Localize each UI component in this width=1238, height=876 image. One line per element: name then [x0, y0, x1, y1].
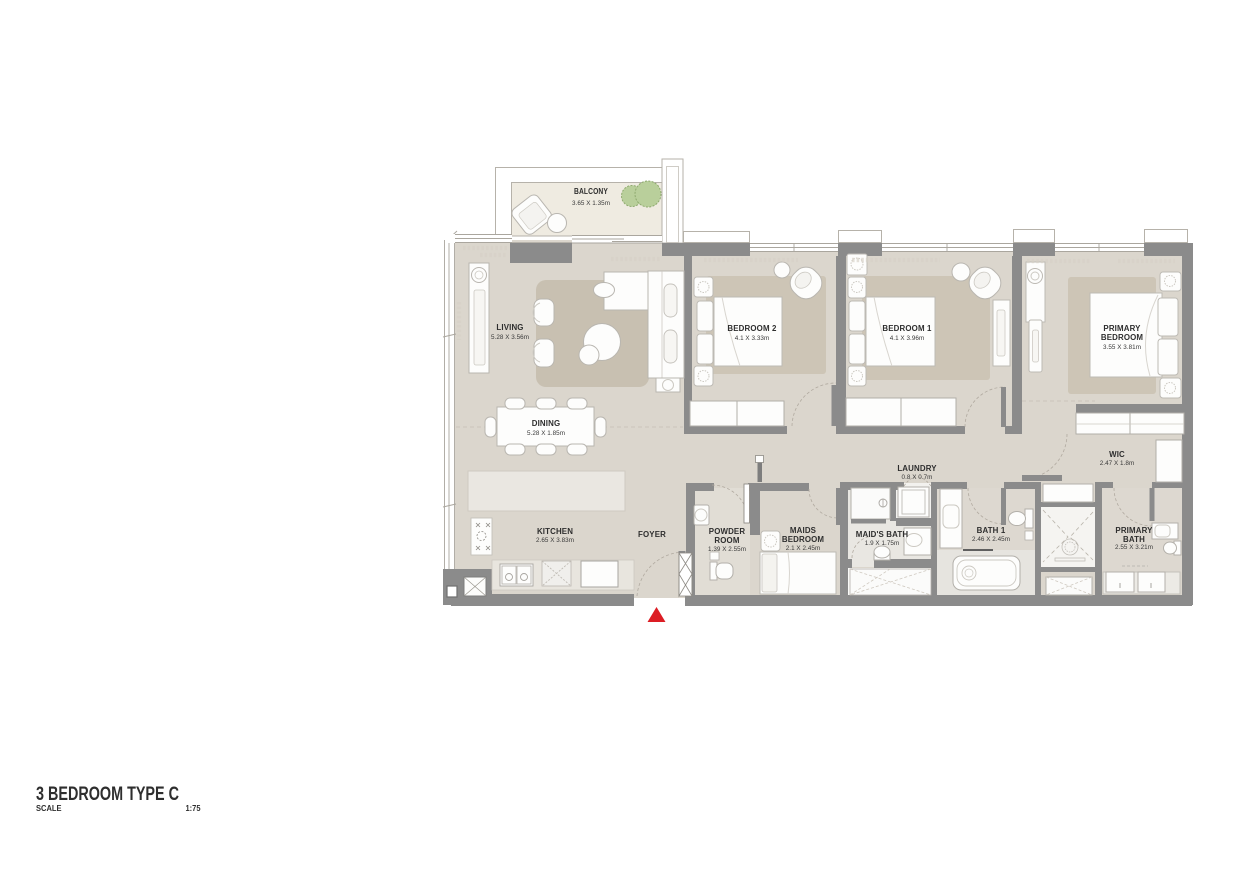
svg-text:2.46 X 2.45m: 2.46 X 2.45m: [972, 536, 1010, 543]
svg-text:3 BEDROOM TYPE C: 3 BEDROOM TYPE C: [36, 784, 179, 805]
svg-text:MAIDS: MAIDS: [790, 526, 816, 535]
svg-text:1:75: 1:75: [186, 803, 201, 813]
svg-text:1.39 X 2.55m: 1.39 X 2.55m: [708, 546, 746, 553]
svg-text:WIC: WIC: [1109, 450, 1125, 459]
svg-text:PRIMARY: PRIMARY: [1103, 324, 1141, 333]
svg-text:1.9 X 1.75m: 1.9 X 1.75m: [865, 540, 900, 547]
svg-text:BATH 1: BATH 1: [977, 526, 1006, 535]
svg-text:LAUNDRY: LAUNDRY: [897, 464, 937, 473]
svg-text:3.55 X 3.81m: 3.55 X 3.81m: [1103, 344, 1141, 351]
svg-text:4.1 X 3.96m: 4.1 X 3.96m: [890, 335, 925, 342]
svg-text:2.65 X 3.83m: 2.65 X 3.83m: [536, 537, 574, 544]
svg-text:DINING: DINING: [532, 419, 561, 428]
svg-text:4.1 X 3.33m: 4.1 X 3.33m: [735, 335, 770, 342]
svg-text:BEDROOM: BEDROOM: [1101, 333, 1144, 342]
svg-text:FOYER: FOYER: [638, 530, 666, 539]
svg-text:BALCONY: BALCONY: [574, 187, 608, 196]
svg-text:BEDROOM 1: BEDROOM 1: [882, 324, 932, 333]
svg-text:BATH: BATH: [1123, 535, 1145, 544]
svg-text:2.47 X 1.8m: 2.47 X 1.8m: [1100, 460, 1135, 467]
svg-text:PRIMARY: PRIMARY: [1115, 526, 1153, 535]
svg-text:BEDROOM: BEDROOM: [782, 535, 825, 544]
svg-text:3.65 X 1.35m: 3.65 X 1.35m: [572, 200, 610, 207]
svg-text:BEDROOM 2: BEDROOM 2: [727, 324, 777, 333]
svg-text:5.28 X 3.56m: 5.28 X 3.56m: [491, 334, 529, 341]
svg-text:LIVING: LIVING: [496, 323, 523, 332]
svg-text:ROOM: ROOM: [714, 536, 739, 545]
svg-text:0.8 X 0.7m: 0.8 X 0.7m: [902, 474, 933, 481]
svg-text:SCALE: SCALE: [36, 803, 62, 813]
svg-text:KITCHEN: KITCHEN: [537, 527, 573, 536]
svg-text:5.28 X 1.85m: 5.28 X 1.85m: [527, 430, 565, 437]
svg-text:2.55 X 3.21m: 2.55 X 3.21m: [1115, 544, 1153, 551]
svg-text:MAID'S BATH: MAID'S BATH: [856, 530, 909, 539]
svg-text:POWDER: POWDER: [709, 527, 746, 536]
svg-text:2.1 X 2.45m: 2.1 X 2.45m: [786, 545, 821, 552]
